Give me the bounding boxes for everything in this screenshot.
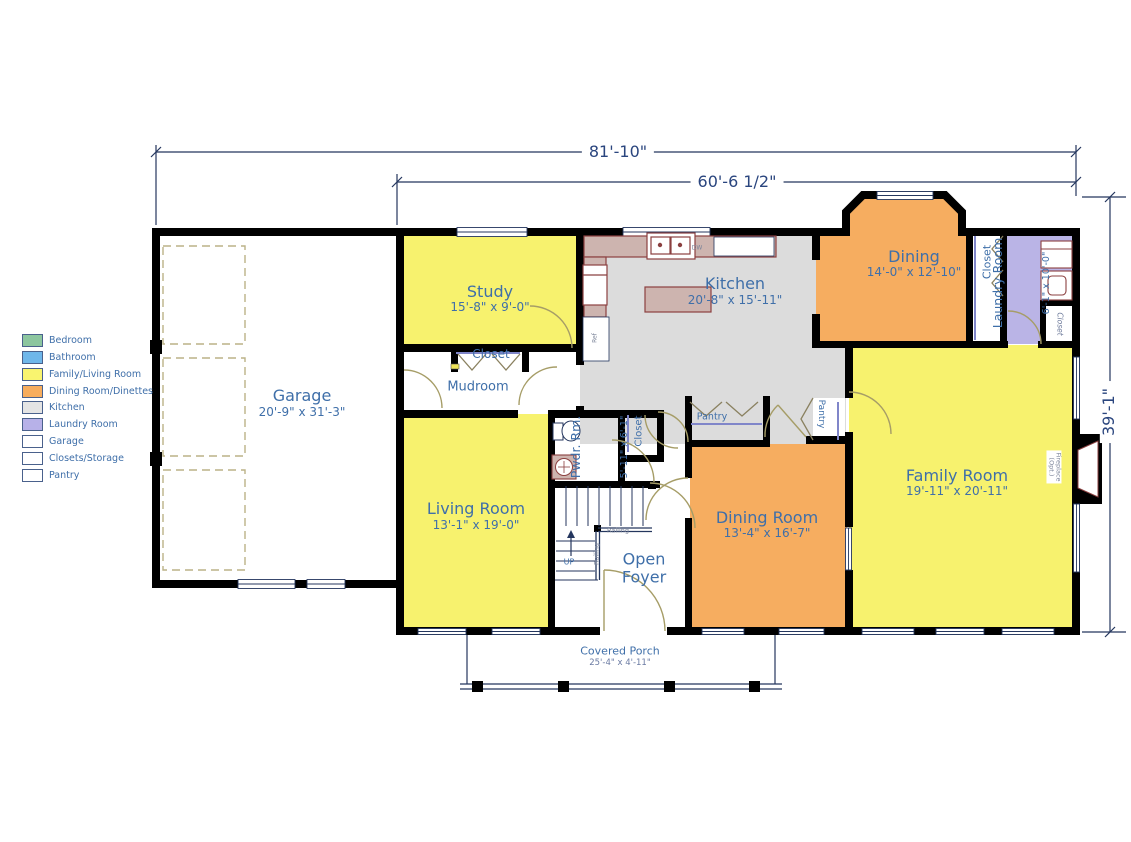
laundry-swatch — [22, 418, 43, 431]
railing-label: Railing — [607, 527, 629, 534]
bathroom-legend-label: Bathroom — [49, 352, 96, 363]
fireplace-label: Fireplace (Opt.) — [1047, 450, 1062, 483]
kitchen-swatch — [22, 401, 43, 414]
legend-item-family-living: Family/Living Room — [22, 367, 141, 381]
main-width-dimension: 60'-6 1/2" — [691, 173, 784, 191]
mudroom-label: Mudroom — [447, 381, 508, 396]
pantry-label: Pantry — [697, 413, 727, 424]
legend-item-kitchen: Kitchen — [22, 400, 85, 414]
family-room-label: Family Room — [906, 467, 1008, 485]
open-foyer-label: Open Foyer — [622, 551, 666, 588]
dishwasher-label: DW — [692, 246, 703, 253]
covered-porch-dims: 25'-4" x 4'-11" — [589, 659, 651, 669]
family-living-legend-label: Family/Living Room — [49, 369, 141, 380]
legend-item-laundry: Laundry Room — [22, 417, 118, 431]
dining-swatch — [22, 385, 43, 398]
dining-room-label: Dining Room — [716, 509, 818, 527]
laundry-legend-label: Laundry Room — [49, 419, 118, 430]
bedroom-swatch — [22, 334, 43, 347]
family-living-swatch — [22, 368, 43, 381]
legend-item-dining: Dining Room/Dinettes — [22, 384, 153, 398]
legend-item-bedroom: Bedroom — [22, 333, 92, 347]
study-closet-label: Closet — [472, 348, 509, 362]
pantry-swatch — [22, 469, 43, 482]
legend-item-pantry: Pantry — [22, 468, 79, 482]
laundry-room-dims: 6'-1" x 10'-0" — [1042, 238, 1053, 329]
living-room-dims: 13'-1" x 19'-0" — [433, 519, 520, 533]
closets-swatch — [22, 452, 43, 465]
legend-item-bathroom: Bathroom — [22, 350, 96, 364]
powder-room-label: Pwdr. Rm. 5'-11" x 6'-1" — [532, 416, 668, 479]
bathroom-swatch — [22, 351, 43, 364]
laundry-room-label: Laundry Room 6'-1" x 10'-0" — [954, 238, 1090, 329]
family-room-dims: 19'-11" x 20'-11" — [906, 485, 1008, 499]
bedroom-legend-label: Bedroom — [49, 335, 92, 346]
dining-bay-floor — [843, 193, 965, 236]
garage-label: Garage — [273, 387, 332, 405]
dining-label: Dining — [888, 248, 940, 266]
pantry-legend-label: Pantry — [49, 470, 79, 481]
garage-dims: 20'-9" x 31'-3" — [259, 406, 346, 420]
laundry-closet-label: Closet — [1055, 312, 1064, 335]
closets-legend-label: Closets/Storage — [49, 453, 124, 464]
pantry-side-label: Pantry — [816, 400, 826, 429]
covered-porch-label: Covered Porch — [580, 646, 660, 659]
legend-item-closets: Closets/Storage — [22, 451, 124, 465]
study-label: Study — [467, 283, 513, 301]
kitchen-legend-label: Kitchen — [49, 402, 85, 413]
overall-width-dimension: 81'-10" — [582, 143, 654, 161]
garage-legend-label: Garage — [49, 436, 84, 447]
dining-legend-label: Dining Room/Dinettes — [49, 386, 153, 397]
up-label: UP — [564, 557, 575, 566]
floor-plan: 81'-10" 60'-6 1/2" 39'-1" Garage 20'-9" … — [0, 0, 1131, 842]
powder-room-dims: 5'-11" x 6'-1" — [620, 416, 631, 479]
height-dimension: 39'-1" — [1100, 381, 1118, 443]
refrigerator-label: Ref — [593, 333, 600, 343]
legend-item-garage: Garage — [22, 434, 84, 448]
powder-room-name: Pwdr. Rm. — [569, 416, 583, 479]
kitchen-label: Kitchen — [705, 275, 765, 293]
living-room-label: Living Room — [427, 500, 525, 518]
kitchen-dims: 20'-8" x 15'-11" — [688, 294, 782, 308]
garage-swatch — [22, 435, 43, 448]
dining-dims: 14'-0" x 12'-10" — [867, 266, 961, 280]
foyer-closet-label: Closet — [633, 415, 645, 446]
hall-closet-label: Closet — [982, 245, 995, 279]
study-dims: 15'-8" x 9'-0" — [450, 301, 529, 315]
railing-side-label: Railing — [593, 543, 600, 565]
dining-room-dims: 13'-4" x 16'-7" — [724, 527, 811, 541]
